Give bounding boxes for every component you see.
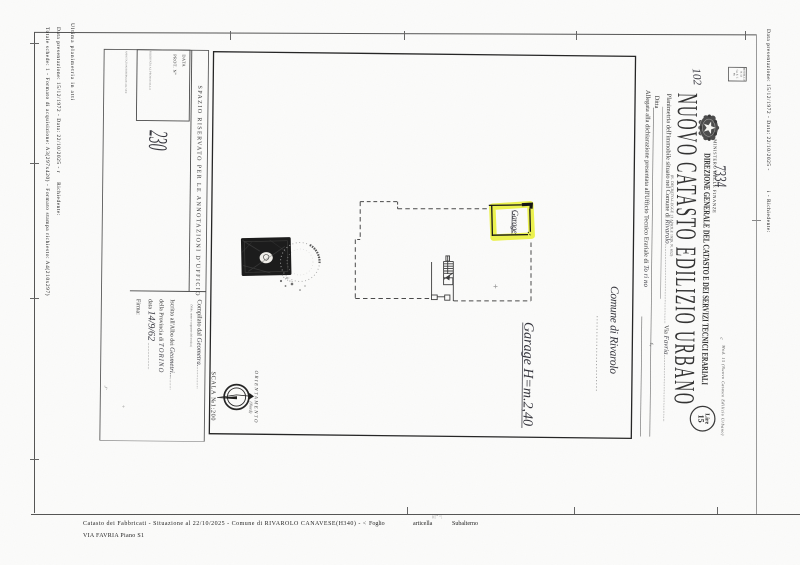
svg-text:(Nord): (Nord) xyxy=(248,401,253,413)
svg-text:SCALA №1:200: SCALA №1:200 xyxy=(209,371,217,420)
svg-text:ORIENTAMENTO: ORIENTAMENTO xyxy=(252,370,258,423)
svg-text:Comune di Rivarolo: Comune di Rivarolo xyxy=(607,286,620,374)
